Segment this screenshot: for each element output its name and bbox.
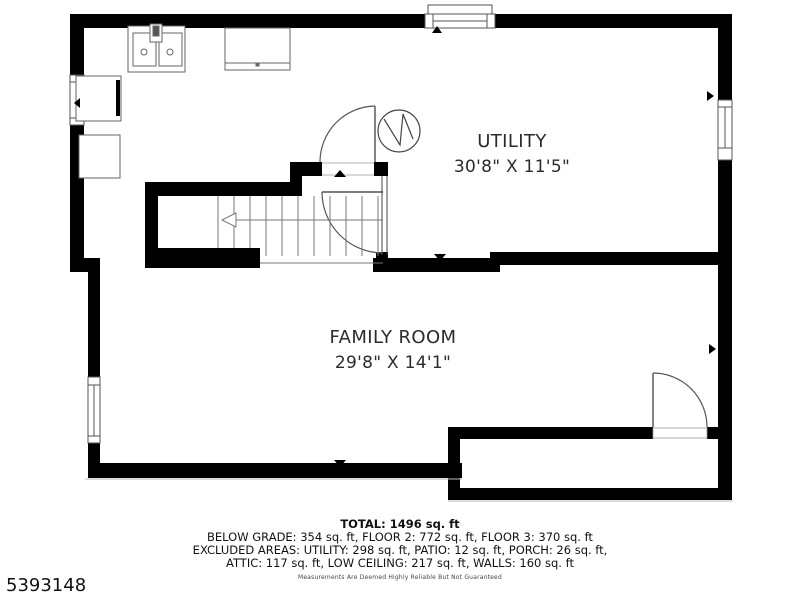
right-window	[718, 100, 732, 160]
dryer-icon	[79, 135, 120, 178]
family-room-name: FAMILY ROOM	[283, 327, 503, 348]
washer-icon	[76, 76, 121, 121]
laundry-sink-icon	[128, 24, 185, 72]
utility-room-dimensions: 30'8" X 11'5"	[402, 157, 622, 177]
landing-partition-wall	[382, 176, 387, 255]
listing-id: 5393148	[6, 575, 86, 596]
utility-room-name: UTILITY	[402, 131, 622, 152]
excluded-areas-text-2: ATTIC: 117 sq. ft, LOW CEILING: 217 sq. …	[0, 557, 800, 570]
utility-room-label: UTILITY 30'8" X 11'5"	[402, 131, 622, 177]
floor-plan-drawing	[0, 0, 800, 600]
patio-door	[653, 373, 707, 438]
family-room-dimensions: 29'8" X 14'1"	[283, 353, 503, 373]
marker-triangles	[74, 26, 716, 467]
stair-direction-arrow	[222, 213, 383, 227]
top-window	[425, 5, 495, 28]
landing-door	[322, 192, 383, 253]
family-room-label: FAMILY ROOM 29'8" X 14'1"	[283, 327, 503, 373]
utility-door	[320, 106, 375, 175]
family-room-window	[88, 377, 100, 443]
floor-plan-page: UTILITY 30'8" X 11'5" FAMILY ROOM 29'8" …	[0, 0, 800, 600]
area-summary: TOTAL: 1496 sq. ft BELOW GRADE: 354 sq. …	[0, 518, 800, 581]
measurement-disclaimer: Measurements Are Deemed Highly Reliable …	[0, 574, 800, 581]
counter-appliance-icon	[225, 28, 290, 70]
